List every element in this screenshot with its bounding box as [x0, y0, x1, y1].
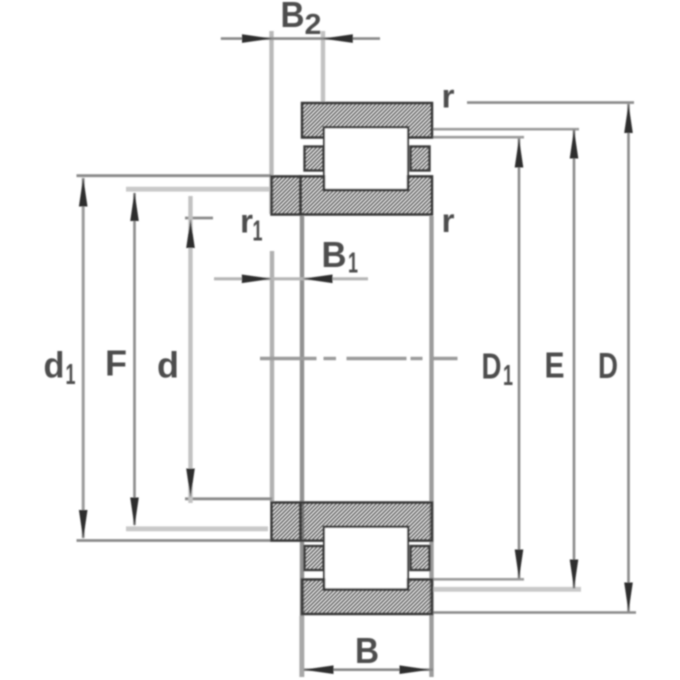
svg-text:F: F	[105, 343, 127, 384]
svg-text:1: 1	[66, 359, 76, 391]
svg-text:r: r	[442, 78, 455, 115]
svg-text:B: B	[322, 234, 347, 275]
svg-text:B: B	[355, 630, 379, 671]
svg-text:d: d	[44, 345, 65, 386]
svg-text:D: D	[482, 346, 502, 387]
svg-text:1: 1	[503, 360, 513, 392]
svg-text:D: D	[598, 345, 618, 386]
svg-text:B: B	[281, 0, 305, 35]
svg-text:r: r	[240, 203, 253, 240]
svg-text:E: E	[545, 345, 565, 386]
svg-text:2: 2	[305, 9, 322, 41]
svg-text:d: d	[157, 345, 179, 386]
svg-text:1: 1	[348, 248, 358, 280]
svg-text:1: 1	[253, 216, 263, 248]
svg-text:r: r	[442, 202, 455, 239]
